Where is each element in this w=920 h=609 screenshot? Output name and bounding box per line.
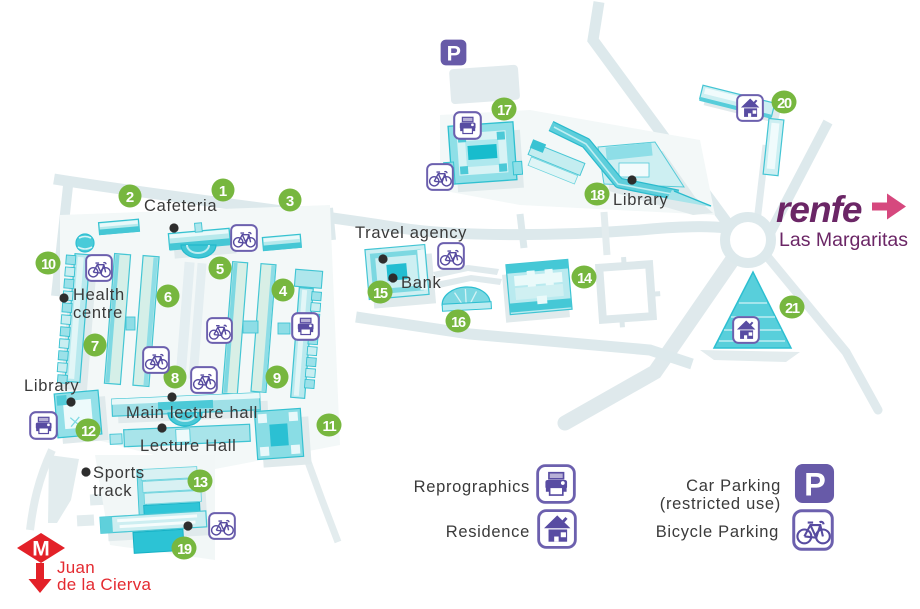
svg-text:7: 7 — [91, 338, 99, 355]
svg-text:9: 9 — [273, 370, 281, 387]
svg-text:centre: centre — [73, 304, 123, 322]
svg-text:13: 13 — [193, 475, 208, 491]
svg-text:Health: Health — [73, 286, 125, 304]
svg-text:3: 3 — [286, 193, 294, 210]
svg-text:Las Margaritas: Las Margaritas — [779, 229, 908, 251]
svg-text:18: 18 — [590, 188, 605, 204]
svg-text:Bicycle Parking: Bicycle Parking — [656, 523, 779, 541]
svg-text:6: 6 — [164, 289, 172, 306]
svg-text:21: 21 — [785, 301, 800, 317]
svg-text:20: 20 — [777, 96, 792, 112]
svg-text:Main lecture hall: Main lecture hall — [126, 404, 258, 422]
svg-text:14: 14 — [577, 271, 592, 287]
svg-text:16: 16 — [451, 315, 466, 331]
svg-text:5: 5 — [216, 261, 224, 278]
svg-text:M: M — [32, 538, 50, 561]
svg-text:2: 2 — [126, 189, 134, 206]
svg-text:Library: Library — [24, 377, 79, 395]
svg-text:(restricted use): (restricted use) — [660, 495, 781, 513]
svg-text:Sports: Sports — [93, 464, 145, 482]
svg-text:17: 17 — [497, 103, 512, 119]
svg-text:12: 12 — [81, 424, 96, 440]
svg-text:Residence: Residence — [446, 523, 530, 541]
svg-text:track: track — [93, 482, 132, 500]
svg-text:19: 19 — [177, 542, 192, 558]
svg-text:Cafeteria: Cafeteria — [144, 197, 217, 215]
svg-text:4: 4 — [279, 283, 288, 300]
svg-text:renfe: renfe — [776, 189, 862, 230]
svg-text:Lecture Hall: Lecture Hall — [140, 437, 236, 455]
svg-text:15: 15 — [373, 286, 388, 302]
svg-text:Bank: Bank — [401, 274, 441, 292]
svg-text:11: 11 — [323, 419, 337, 435]
svg-text:8: 8 — [171, 370, 179, 387]
svg-text:1: 1 — [219, 183, 227, 200]
svg-text:de la Cierva: de la Cierva — [57, 575, 152, 594]
svg-text:Library: Library — [613, 191, 668, 209]
svg-text:Reprographics: Reprographics — [414, 478, 530, 496]
svg-text:Car Parking: Car Parking — [686, 477, 781, 495]
svg-text:Travel agency: Travel agency — [355, 224, 467, 242]
svg-text:10: 10 — [41, 257, 56, 273]
